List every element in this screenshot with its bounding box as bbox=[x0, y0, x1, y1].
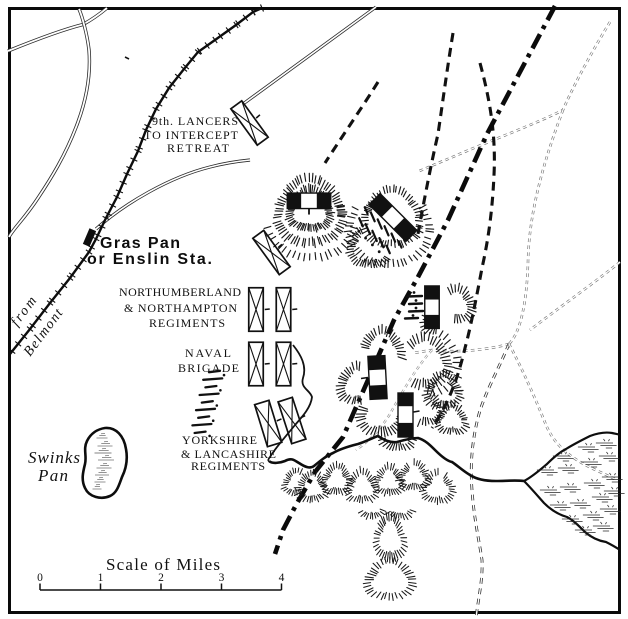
svg-text:9th. LANCERS: 9th. LANCERS bbox=[152, 114, 238, 128]
svg-text:TO INTERCEPT: TO INTERCEPT bbox=[144, 128, 239, 142]
svg-text:2: 2 bbox=[158, 572, 164, 584]
svg-text:REGIMENTS: REGIMENTS bbox=[149, 316, 225, 330]
svg-text:0: 0 bbox=[37, 572, 43, 584]
svg-text:Pan: Pan bbox=[37, 466, 68, 485]
svg-text:REGIMENTS: REGIMENTS bbox=[191, 459, 265, 473]
svg-text:Gras Pan: Gras Pan bbox=[100, 235, 180, 252]
svg-text:1: 1 bbox=[98, 572, 104, 584]
svg-text:& NORTHAMPTON: & NORTHAMPTON bbox=[124, 301, 237, 315]
svg-text:3: 3 bbox=[219, 572, 225, 584]
svg-text:NORTHUMBERLAND: NORTHUMBERLAND bbox=[119, 285, 241, 299]
svg-text:4: 4 bbox=[279, 572, 285, 584]
svg-text:NAVAL: NAVAL bbox=[185, 346, 231, 360]
svg-text:BRIGADE: BRIGADE bbox=[178, 361, 239, 375]
svg-text:or Enslin Sta.: or Enslin Sta. bbox=[87, 251, 212, 268]
svg-text:Swinks: Swinks bbox=[28, 448, 80, 467]
svg-text:YORKSHIRE: YORKSHIRE bbox=[182, 433, 257, 447]
